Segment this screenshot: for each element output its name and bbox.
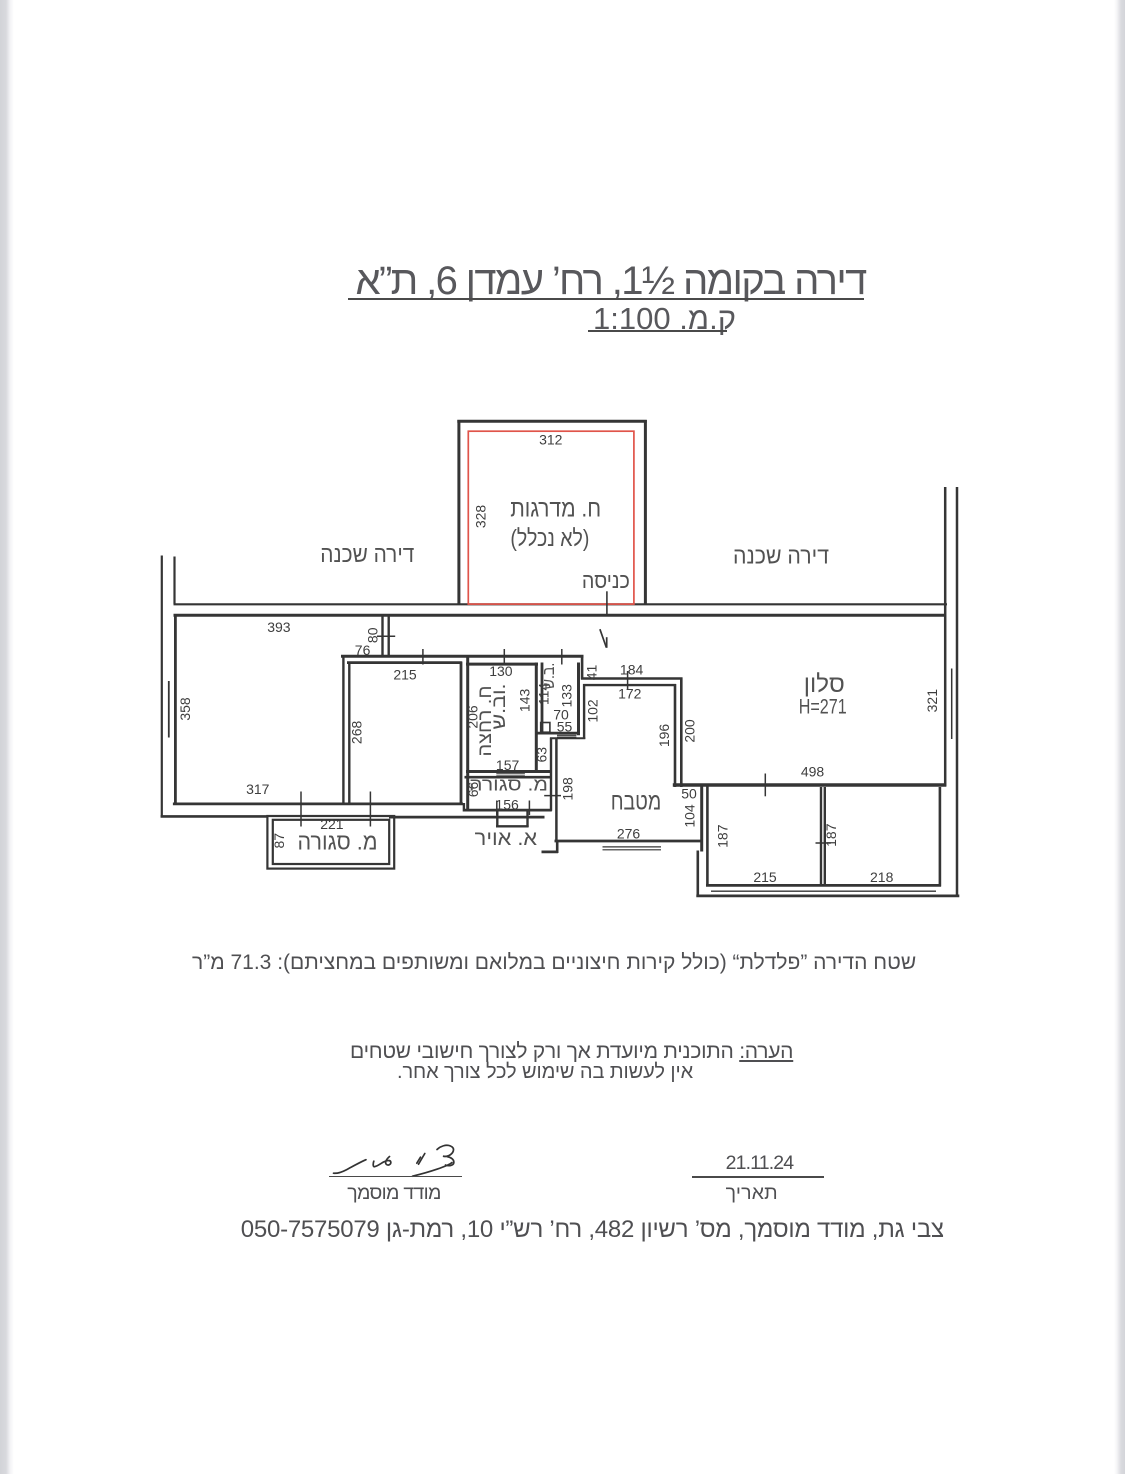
svg-text:102: 102: [584, 699, 600, 723]
svg-text:דירה שכנה: דירה שכנה: [733, 543, 829, 569]
svg-text:63: 63: [534, 747, 550, 763]
svg-text:(לא נכלל): (לא נכלל): [510, 525, 589, 551]
svg-text:196: 196: [656, 724, 672, 748]
svg-text:156: 156: [495, 797, 519, 813]
svg-text:מ. סגורה: מ. סגורה: [298, 829, 378, 855]
svg-text:498: 498: [801, 764, 825, 780]
svg-text:ב.ש.: ב.ש.: [540, 663, 558, 690]
svg-text:157: 157: [496, 757, 520, 773]
svg-text:מ. סגורה: מ. סגורה: [469, 775, 548, 795]
svg-text:172: 172: [618, 686, 642, 702]
svg-text:215: 215: [393, 667, 417, 683]
svg-text:312: 312: [539, 432, 563, 448]
svg-text:321: 321: [924, 689, 940, 713]
svg-text:H=271: H=271: [799, 694, 847, 718]
svg-text:50: 50: [681, 786, 697, 802]
svg-text:104: 104: [681, 804, 697, 828]
svg-text:133: 133: [558, 684, 574, 708]
svg-text:כניסה: כניסה: [582, 568, 630, 593]
svg-text:55: 55: [557, 719, 573, 735]
svg-text:130: 130: [489, 663, 513, 679]
svg-text:317: 317: [246, 781, 270, 797]
svg-text:215: 215: [753, 869, 777, 885]
svg-text:276: 276: [617, 825, 641, 841]
svg-text:358: 358: [177, 697, 193, 721]
svg-text:41: 41: [583, 665, 599, 681]
svg-text:ח. מדרגות: ח. מדרגות: [510, 496, 601, 523]
svg-text:וב.ש.: וב.ש.: [488, 684, 510, 730]
svg-text:218: 218: [870, 869, 894, 885]
svg-text:187: 187: [714, 824, 730, 848]
svg-text:דירה שכנה: דירה שכנה: [320, 541, 414, 567]
svg-text:328: 328: [473, 505, 489, 529]
svg-text:143: 143: [517, 689, 533, 713]
svg-text:393: 393: [267, 619, 291, 635]
svg-text:76: 76: [355, 642, 371, 658]
svg-text:מטבח: מטבח: [611, 789, 662, 816]
svg-text:80: 80: [364, 627, 380, 643]
svg-text:184: 184: [620, 661, 644, 677]
svg-text:268: 268: [348, 721, 364, 745]
svg-text:א. אויר: א. אויר: [475, 827, 537, 850]
svg-text:200: 200: [682, 719, 698, 743]
svg-text:198: 198: [559, 777, 575, 801]
svg-text:87: 87: [271, 833, 287, 849]
svg-text:187: 187: [823, 823, 839, 847]
